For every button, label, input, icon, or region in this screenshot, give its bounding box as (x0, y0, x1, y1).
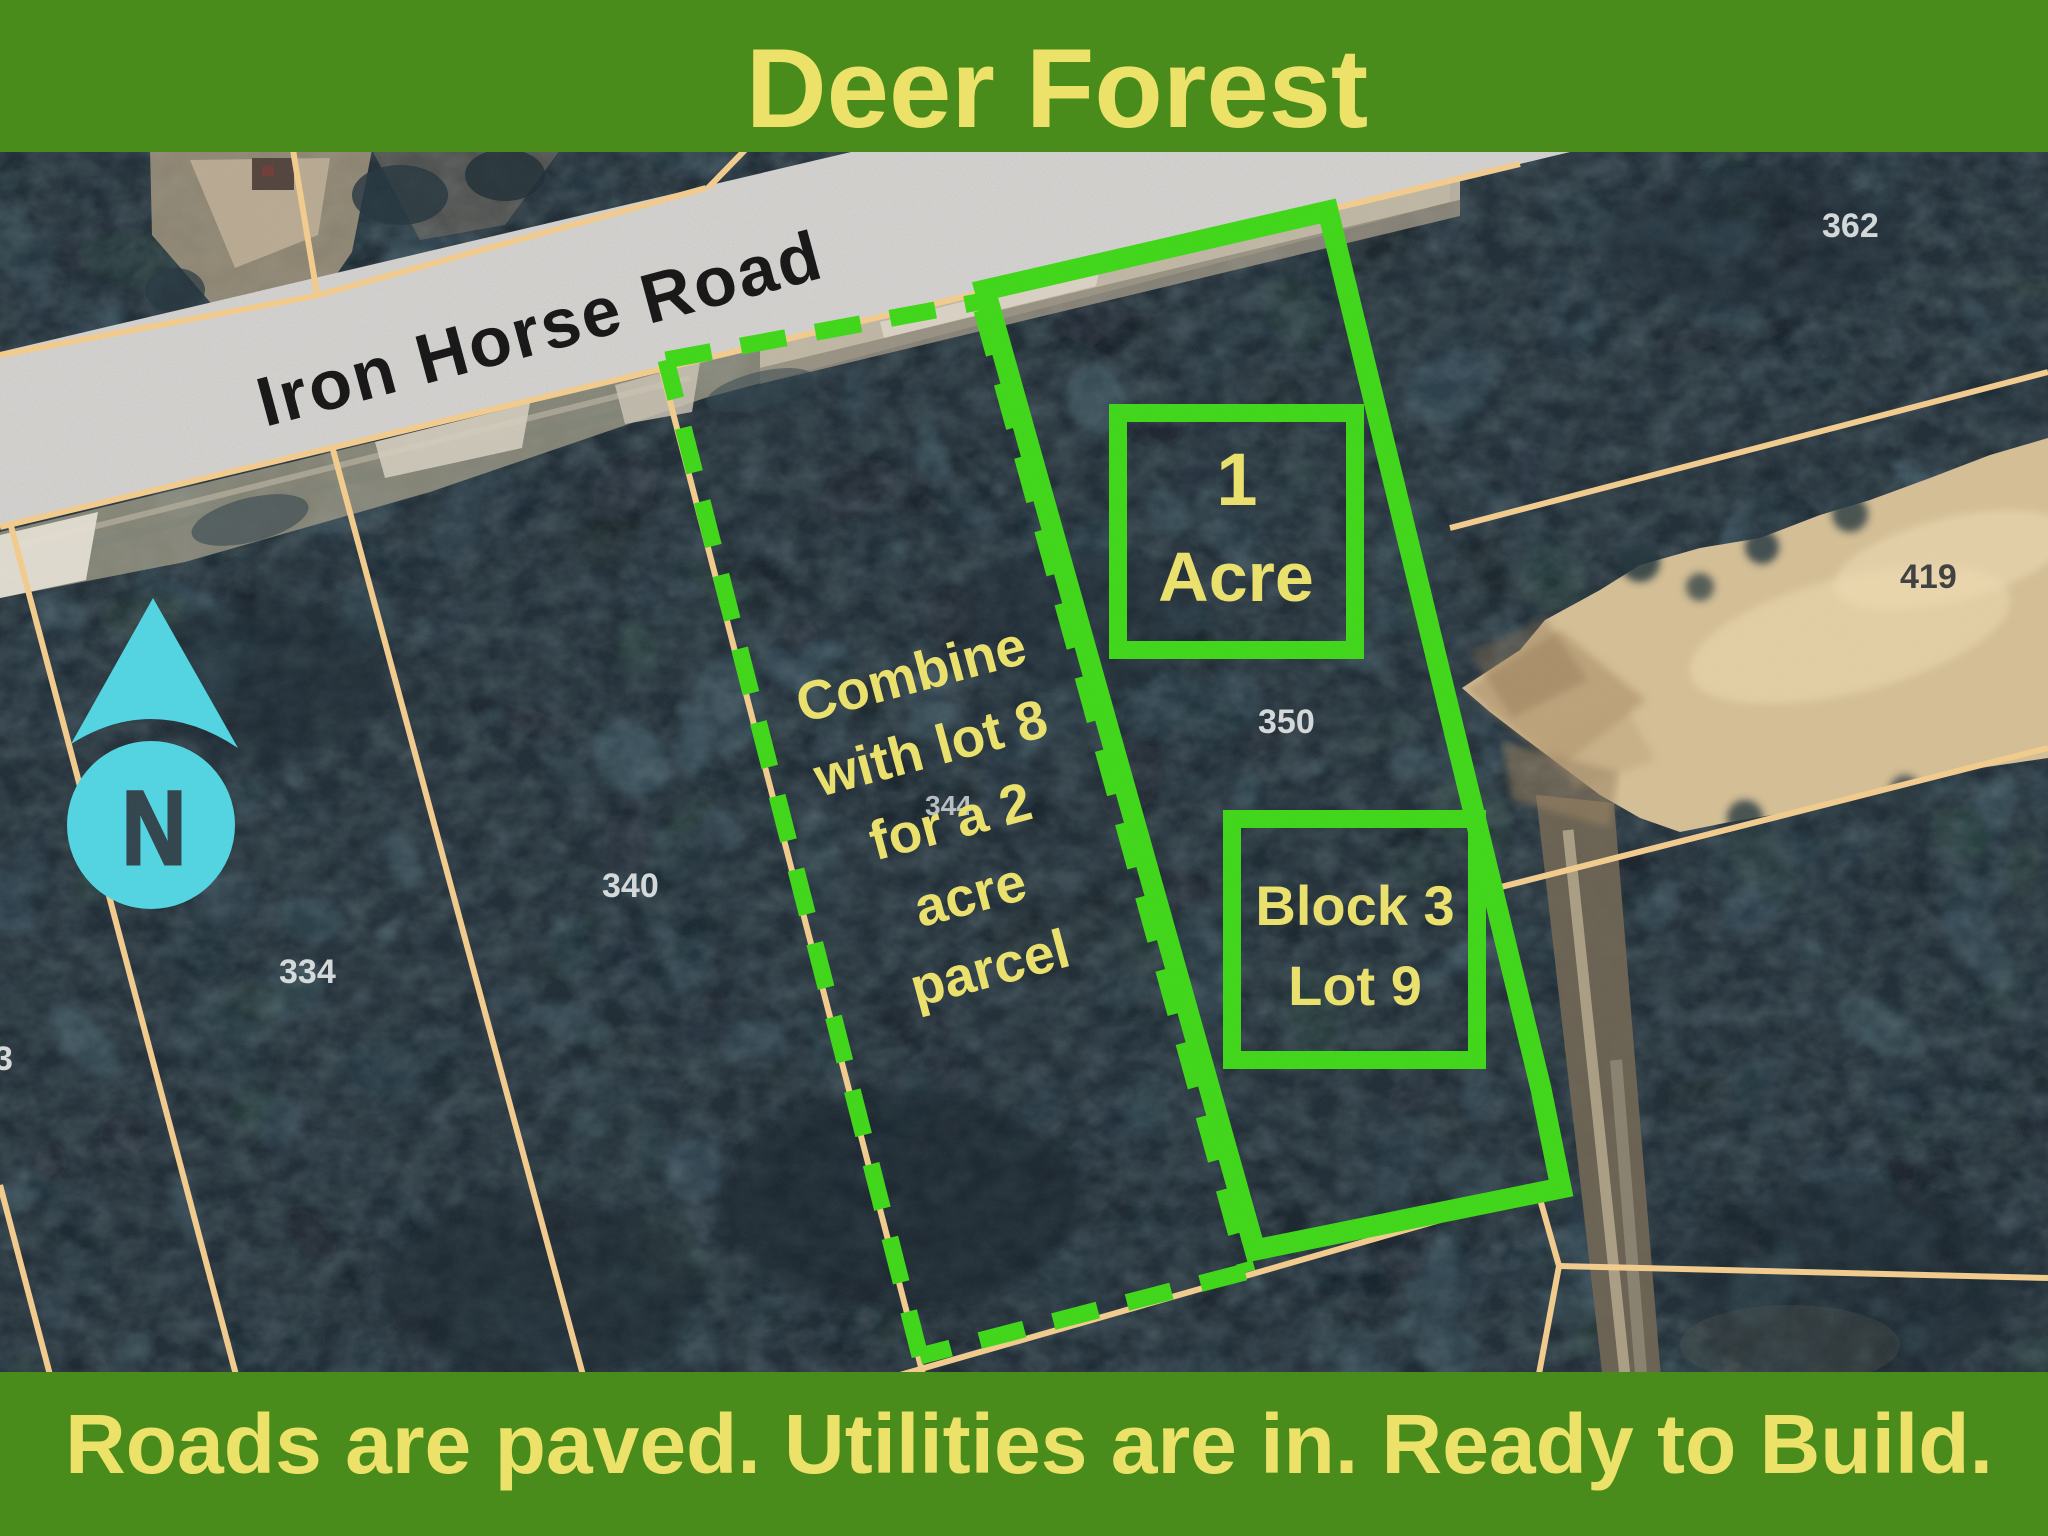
svg-text:Deer Forest: Deer Forest (746, 26, 1368, 151)
svg-text:Roads are paved. Utilities are: Roads are paved. Utilities are in. Ready… (65, 1397, 1993, 1491)
